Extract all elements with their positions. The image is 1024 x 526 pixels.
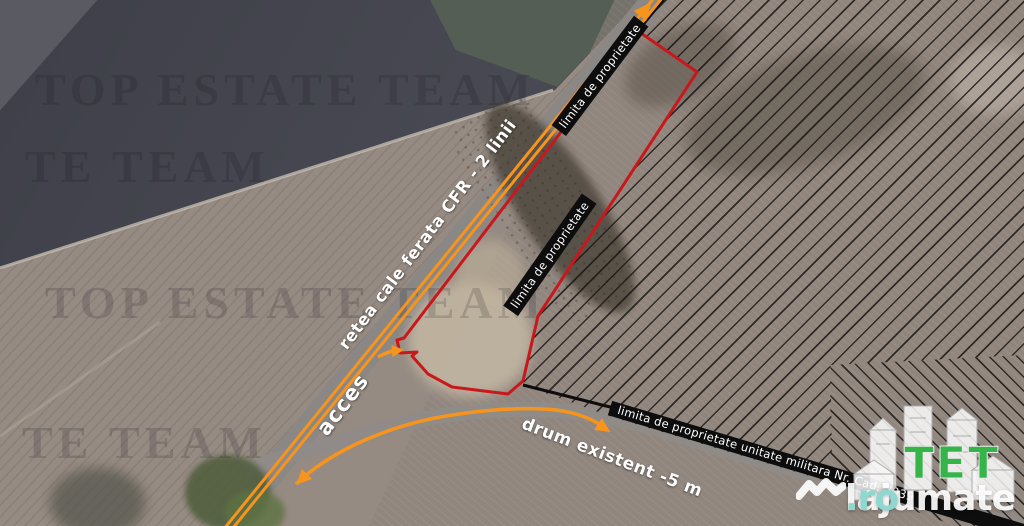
logo-roof-right <box>947 408 977 420</box>
brand-layer: TET lajumate.ro <box>0 0 1024 526</box>
handshake-icon <box>796 474 846 512</box>
satellite-map: TOP ESTATE TEAM TE TEAM TOP ESTATE TEAM … <box>0 0 1024 526</box>
lajumate-tld-text: .ro <box>845 478 898 519</box>
logo-roof-left <box>870 418 896 430</box>
